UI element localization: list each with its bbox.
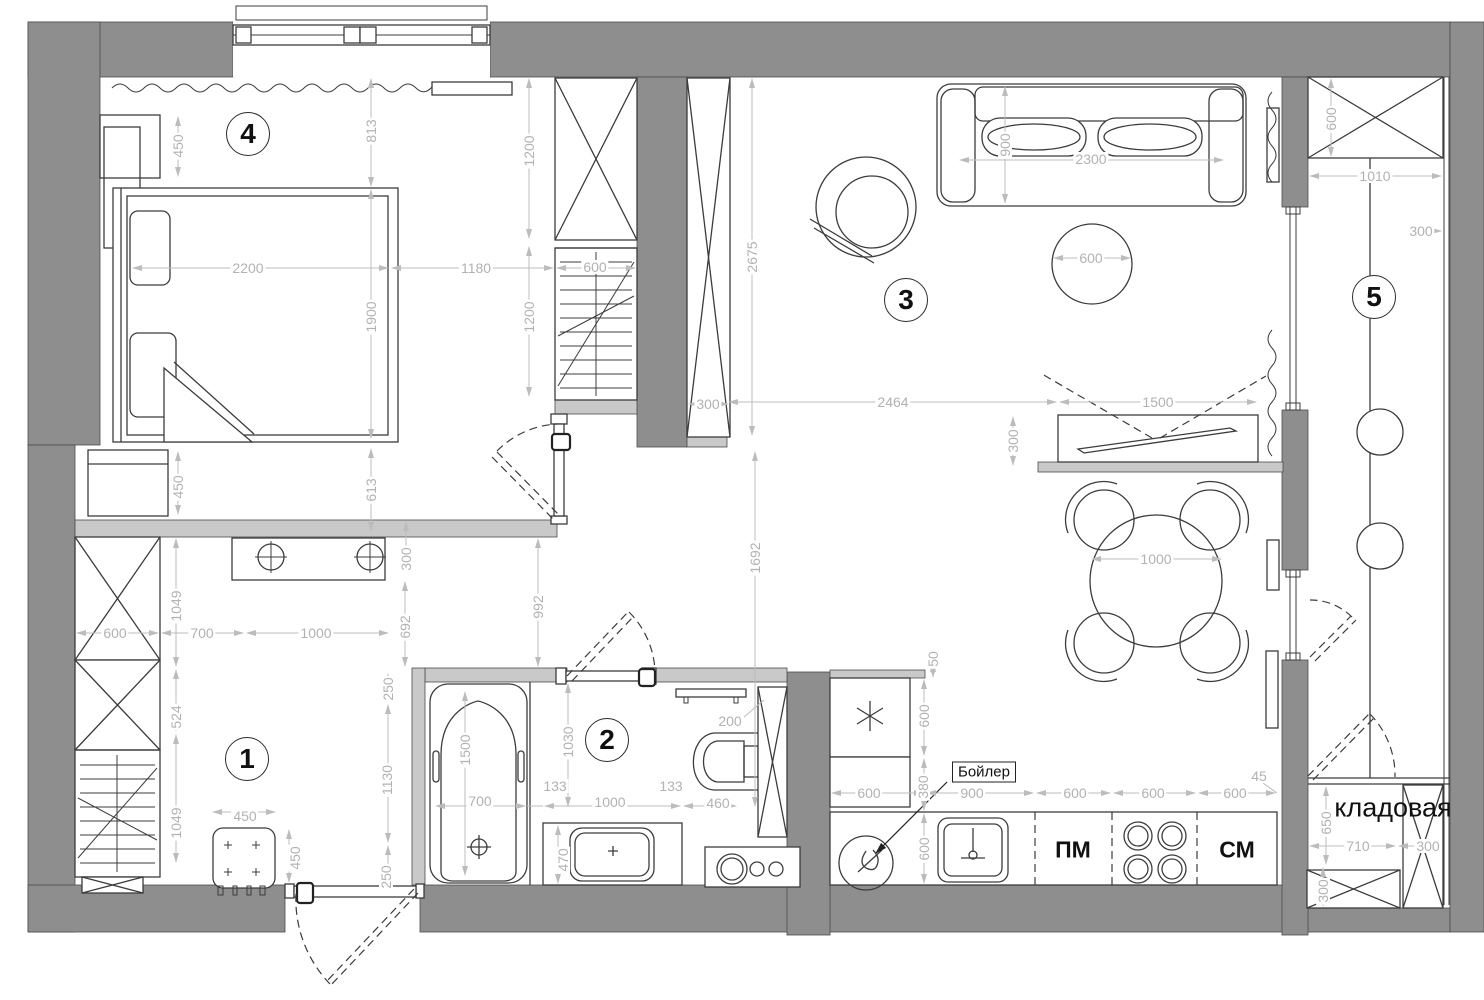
dimension-label: 2464 [875, 395, 910, 409]
dimension-label: 600 [1221, 786, 1248, 800]
dimension-label: 900 [998, 131, 1012, 158]
floor-plan-drawing [0, 0, 1484, 1000]
dimension-label: 460 [704, 796, 731, 810]
dimension-label: 1900 [364, 299, 378, 334]
dimension-label: 380 [916, 773, 930, 800]
dimension-label: 1000 [1138, 552, 1173, 566]
dimension-label: 600 [581, 260, 608, 274]
walls [28, 22, 1484, 935]
washing-unit [705, 847, 800, 887]
dimension-label: 524 [169, 703, 183, 730]
loggia-glazing [1286, 77, 1449, 905]
dimension-label: 1030 [561, 724, 575, 759]
dimension-label: 50 [926, 649, 940, 669]
dimension-label: 650 [1319, 809, 1333, 836]
bathroom-fixtures [430, 682, 800, 887]
dimension-label: 2200 [230, 261, 265, 275]
dimension-label: 250 [379, 863, 393, 890]
dimension-label: 450 [288, 844, 302, 871]
dimension-label: 992 [531, 593, 545, 620]
curtain-wave [1268, 330, 1276, 456]
kitchen [830, 678, 1277, 890]
dimension-label: 300 [1407, 224, 1434, 238]
floor-plan: 4508131200220011806001900120045061326753… [0, 0, 1484, 1000]
armchair [810, 157, 916, 263]
dining-table [1090, 515, 1222, 647]
dimension-label: 450 [231, 809, 258, 823]
dimension-label: 1180 [459, 261, 493, 275]
room-number-5: 5 [1352, 275, 1396, 319]
dimension-label: 300 [1414, 839, 1441, 853]
dimension-label: 600 [917, 835, 931, 862]
pouf [213, 828, 275, 888]
dimension-label: 250 [381, 675, 395, 702]
wall-shelf [432, 82, 512, 95]
dimension-label: 1500 [458, 732, 472, 767]
pillow [130, 211, 170, 285]
dimension-label: 600 [917, 702, 931, 729]
radiator [1267, 108, 1279, 182]
dimension-label: 700 [466, 794, 493, 808]
curtain-wave [112, 84, 432, 92]
dimension-label: 300 [694, 397, 721, 411]
dimension-label: 600 [101, 626, 128, 640]
loggia [1307, 77, 1450, 908]
door-handle [639, 669, 655, 686]
dimension-label: 1049 [169, 588, 183, 623]
door-handle [552, 434, 570, 450]
dimension-label: 1049 [169, 805, 183, 840]
nightstand [100, 115, 160, 178]
dimension-label: 300 [1006, 427, 1020, 454]
hall-furniture [75, 537, 386, 895]
dimension-label: 600 [1139, 786, 1166, 800]
dimension-label: 450 [171, 473, 185, 500]
radiator [1266, 651, 1278, 728]
room-number-4: 4 [226, 112, 270, 156]
dimension-label: 133 [541, 779, 568, 793]
dimension-label: 600 [1077, 251, 1104, 265]
dimension-label: 133 [657, 779, 684, 793]
dimension-label: 1000 [592, 795, 627, 809]
room-number-2: 2 [585, 718, 629, 762]
curtain-wave [1268, 92, 1276, 182]
dimension-label: 2300 [1073, 152, 1108, 166]
dimension-label: 2675 [745, 239, 759, 274]
dimension-label: 813 [364, 117, 378, 144]
dimension-label: 1010 [1357, 169, 1392, 183]
radiator [1267, 540, 1279, 590]
dimension-label: 613 [364, 476, 378, 503]
dimension-label: 600 [855, 786, 882, 800]
dimension-label: 1130 [380, 763, 394, 797]
text-label: СМ [1219, 839, 1254, 862]
dimension-label: 470 [556, 846, 570, 873]
dimension-label: 692 [398, 613, 412, 640]
dimension-label: 600 [1061, 786, 1088, 800]
dimension-label: 200 [716, 714, 743, 728]
room-number-1: 1 [225, 737, 269, 781]
dining-chairs [1066, 482, 1249, 682]
dimension-label: 450 [171, 132, 185, 159]
text-label: кладовая [1334, 795, 1451, 822]
kitchen-counter [830, 812, 1277, 885]
dimension-label: 1200 [522, 299, 536, 334]
dimension-label: 45 [1249, 769, 1269, 783]
dimension-label: 1692 [748, 540, 762, 575]
dimension-label: 300 [399, 545, 413, 572]
nightstand [88, 450, 168, 516]
dimension-label: 700 [188, 626, 215, 640]
text-label: ПМ [1055, 839, 1091, 862]
bedroom-window [233, 6, 490, 77]
dimension-label: 1200 [522, 133, 536, 168]
console-table [232, 538, 385, 580]
dimension-label: 600 [1324, 105, 1338, 132]
dimension-label: 710 [1344, 839, 1371, 853]
text-label: Бойлер [952, 762, 1016, 783]
dimension-label: 300 [1316, 877, 1330, 904]
towel-rail [676, 689, 746, 697]
dimension-label: 900 [958, 786, 985, 800]
dimension-label: 1500 [1140, 395, 1175, 409]
room-number-3: 3 [884, 278, 928, 322]
door-handle [297, 883, 313, 903]
dimension-label: 1000 [298, 626, 333, 640]
